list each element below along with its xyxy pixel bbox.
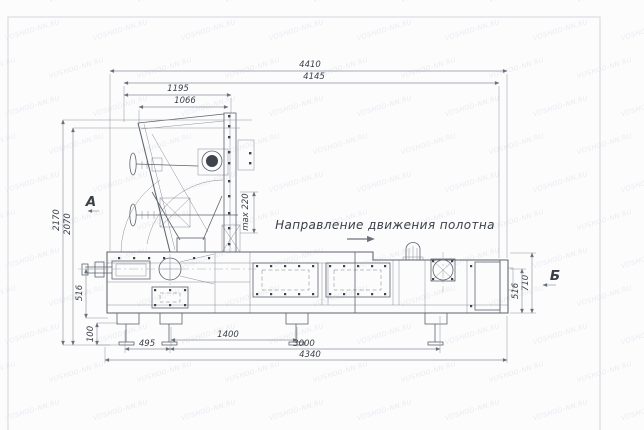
access-panel-2	[326, 263, 390, 297]
left-shaft	[82, 261, 150, 279]
dim-label: 2070	[63, 213, 73, 235]
direction-note: Направление движения полотна	[275, 218, 495, 239]
handwheel-upper	[130, 153, 198, 175]
view-label-a: А	[85, 194, 99, 211]
dim-label: 2170	[52, 209, 62, 231]
conveyor-assembly	[78, 243, 513, 346]
handwheel-lower	[130, 198, 238, 227]
dimension-leg-spacing: 1400	[171, 327, 297, 346]
dim-label: 4145	[303, 72, 325, 82]
dimension-frame-length: 3000	[170, 316, 440, 353]
dimension-foot-height: 100	[86, 323, 118, 345]
dim-label: 710	[521, 275, 531, 291]
dim-label: max 220	[241, 193, 251, 230]
dim-label: 4410	[299, 60, 321, 70]
dim-label: 516	[511, 282, 521, 299]
dim-label: 3000	[293, 339, 315, 349]
dim-label: 516	[75, 284, 85, 301]
dim-label: 1195	[167, 84, 189, 94]
dimension-left-axis-height: 516	[75, 269, 108, 318]
dimension-gap-max: max 220	[240, 192, 258, 233]
dim-label: 1400	[217, 330, 239, 340]
hopper-drive-pulley	[198, 149, 228, 175]
drawing-sheet: VOSHOD-NN.RUVOSHOD-NN.RUVOSHOD-NN.RUVOSH…	[0, 0, 644, 430]
view-a-letter: А	[85, 194, 96, 210]
dim-label: 100	[86, 326, 96, 342]
dim-label: 1066	[174, 96, 196, 106]
view-b-letter: Б	[550, 268, 560, 284]
dim-label: 4340	[299, 350, 321, 360]
technical-drawing: 4410 4145 1195 1066 2170 2070	[0, 0, 644, 430]
access-panel-1	[253, 263, 318, 297]
view-label-b: Б	[543, 268, 560, 285]
hopper-assembly	[121, 113, 254, 252]
direction-note-text: Направление движения полотна	[275, 218, 495, 232]
dim-label: 495	[139, 339, 155, 349]
dimension-leg-offset: 495	[125, 330, 170, 353]
roller-stand	[403, 243, 423, 261]
